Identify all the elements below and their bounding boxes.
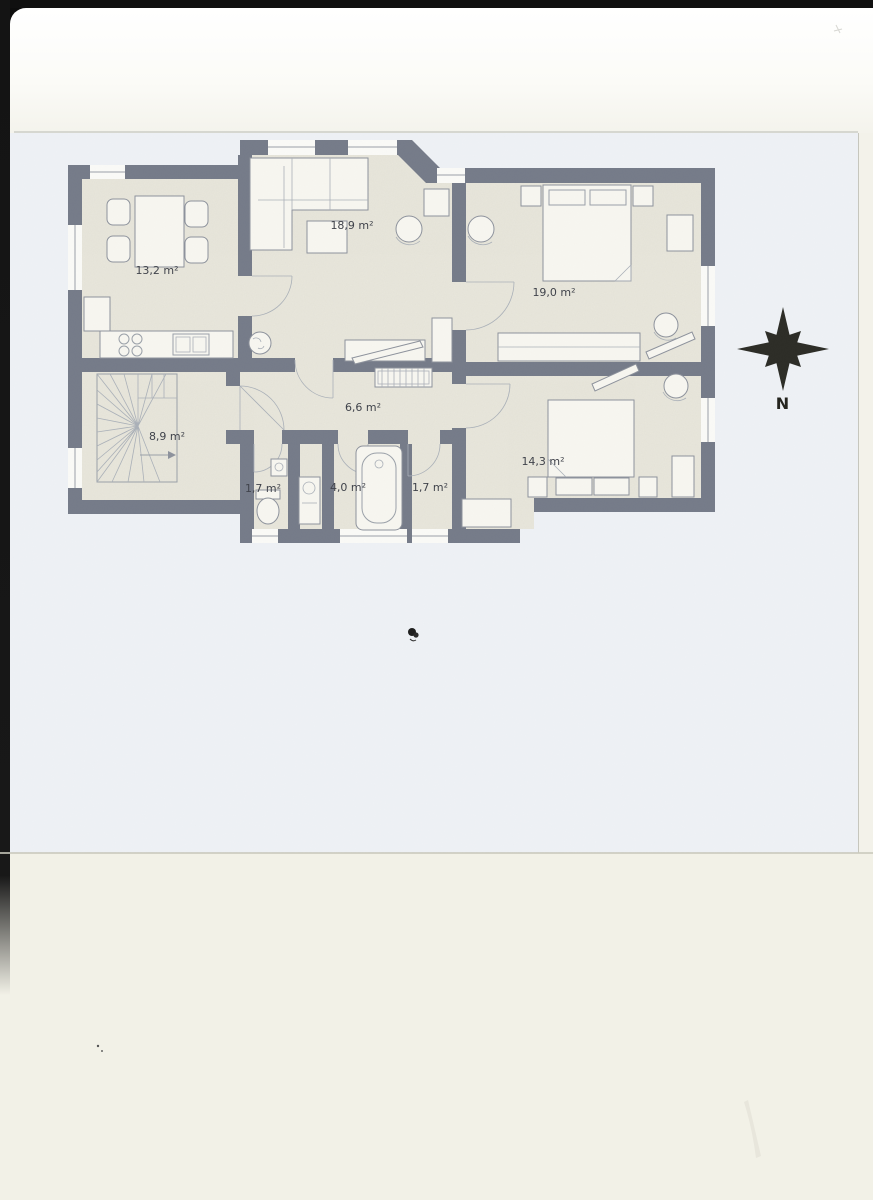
page-grain	[10, 133, 858, 853]
speck-marks	[97, 1045, 301, 1200]
floor-plan-canvas: 13,2 m² 18,9 m² 19,0 m² 6,6 m² 8,9 m² 1,…	[0, 0, 873, 1200]
scanned-floor-plan-page: 13,2 m² 18,9 m² 19,0 m² 6,6 m² 8,9 m² 1,…	[0, 0, 873, 1200]
scan-artifacts	[10, 25, 858, 1200]
faint-smudge-bottom-right	[744, 1100, 761, 1158]
faint-mark-top-right	[834, 25, 842, 33]
